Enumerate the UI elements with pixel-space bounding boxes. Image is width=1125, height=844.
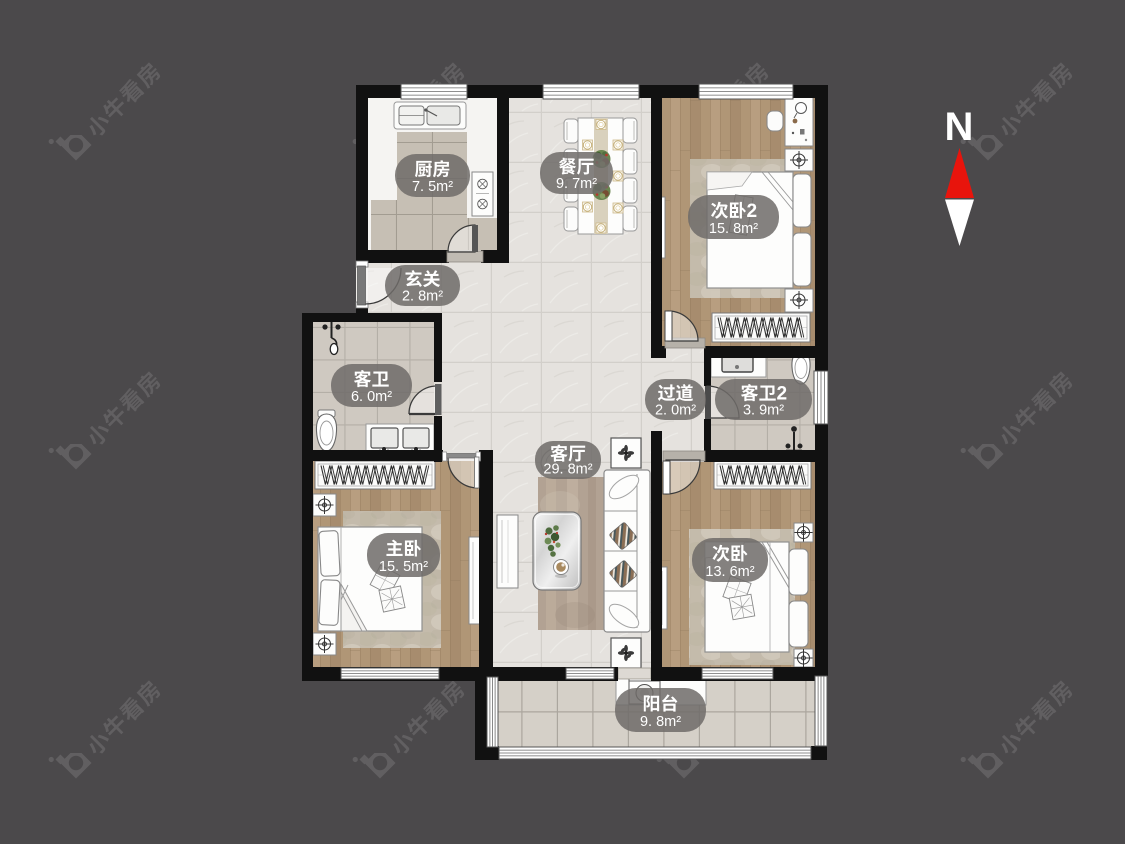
svg-text:3. 9m²: 3. 9m² <box>743 402 784 418</box>
svg-text:13. 6m²: 13. 6m² <box>705 564 754 580</box>
svg-text:15. 5m²: 15. 5m² <box>379 559 428 575</box>
svg-text:9. 8m²: 9. 8m² <box>640 714 681 730</box>
svg-text:9. 7m²: 9. 7m² <box>556 176 597 192</box>
svg-text:2: 2 <box>747 201 758 222</box>
svg-text:29. 8m²: 29. 8m² <box>543 462 592 478</box>
svg-text:2. 0m²: 2. 0m² <box>655 402 696 418</box>
svg-text:15. 8m²: 15. 8m² <box>709 221 758 237</box>
svg-text:6. 0m²: 6. 0m² <box>351 389 392 405</box>
svg-text:2. 8m²: 2. 8m² <box>402 288 443 304</box>
svg-text:N: N <box>945 105 974 149</box>
svg-text:7. 5m²: 7. 5m² <box>412 179 453 195</box>
